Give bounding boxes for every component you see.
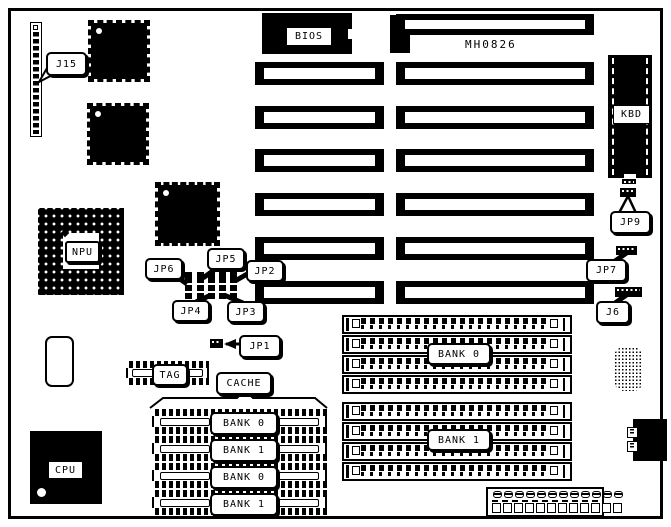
simm-socket xyxy=(342,375,572,394)
j15-pins xyxy=(33,32,39,134)
jp4-jumper xyxy=(208,272,215,301)
cpu-label: CPU xyxy=(48,461,83,479)
cache-bank-row-label: BANK 0 xyxy=(210,412,278,435)
model-number: MH0826 xyxy=(465,38,575,51)
power-edge-connector xyxy=(633,419,667,461)
oscillator xyxy=(45,336,74,387)
simm-bank1-label: BANK 1 xyxy=(427,429,491,451)
jp5-label: JP5 xyxy=(207,248,245,270)
j15-connector xyxy=(30,22,42,137)
jp1-label: JP1 xyxy=(239,335,281,358)
isa-slot xyxy=(255,193,384,216)
isa-slot xyxy=(396,237,594,260)
power-header-boxes xyxy=(492,503,622,513)
jp2-jumper xyxy=(230,272,237,301)
isa-slot xyxy=(396,149,594,172)
simm-socket xyxy=(342,315,572,334)
jp3-label: JP3 xyxy=(227,301,265,323)
jp7-jumper xyxy=(616,246,637,255)
isa-slot xyxy=(255,237,384,260)
jp9-jumper xyxy=(620,188,636,197)
npu-label: NPU xyxy=(65,241,100,263)
kbd-pins xyxy=(622,179,636,184)
jp2-label: JP2 xyxy=(246,260,284,282)
simm-socket xyxy=(342,402,572,421)
cache-label: CACHE xyxy=(216,372,272,395)
crystal-can xyxy=(614,347,643,391)
jp4-label: JP4 xyxy=(172,300,210,322)
isa-slot xyxy=(396,281,594,304)
j15-label-text: J15 xyxy=(56,59,77,70)
isa-slot xyxy=(396,62,594,85)
kbd-label-text: KBD xyxy=(621,109,642,120)
power-header xyxy=(486,487,604,517)
cache-bank-row-label: BANK 1 xyxy=(210,439,278,462)
qfp-chip-3 xyxy=(155,182,220,246)
jp3-jumper xyxy=(219,272,226,301)
j6-header xyxy=(615,287,642,297)
jp6-jumper xyxy=(185,272,192,301)
isa-slot xyxy=(396,14,594,35)
simm-socket xyxy=(342,462,572,481)
jp7-label: JP7 xyxy=(586,259,627,282)
cache-bank-row-label: BANK 1 xyxy=(210,493,278,516)
bios-label-text: BIOS xyxy=(295,31,323,42)
qfp-chip-2 xyxy=(87,103,149,165)
isa-slot xyxy=(255,106,384,129)
isa-slot xyxy=(255,281,384,304)
isa-slot xyxy=(396,106,594,129)
jp1-jumper xyxy=(210,339,223,348)
qfp-chip-1 xyxy=(88,20,150,82)
isa-slot xyxy=(255,149,384,172)
tag-label: TAG xyxy=(152,364,188,386)
isa-slot xyxy=(396,193,594,216)
j15-label: J15 xyxy=(46,52,87,76)
jp9-label: JP9 xyxy=(610,211,651,234)
j6-label: J6 xyxy=(596,301,630,324)
jp6-label: JP6 xyxy=(145,258,183,280)
bios-label: BIOS xyxy=(286,27,332,46)
isa-slot xyxy=(255,62,384,85)
jp5-jumper xyxy=(197,272,204,301)
kbd-label: KBD xyxy=(613,105,650,124)
simm-bank0-label: BANK 0 xyxy=(427,343,491,365)
motherboard-diagram: J15 BIOS MH0826 KBD JP9 JP7 J6 xyxy=(0,0,671,527)
power-header-pins xyxy=(493,491,623,498)
cache-bank-row-label: BANK 0 xyxy=(210,466,278,489)
